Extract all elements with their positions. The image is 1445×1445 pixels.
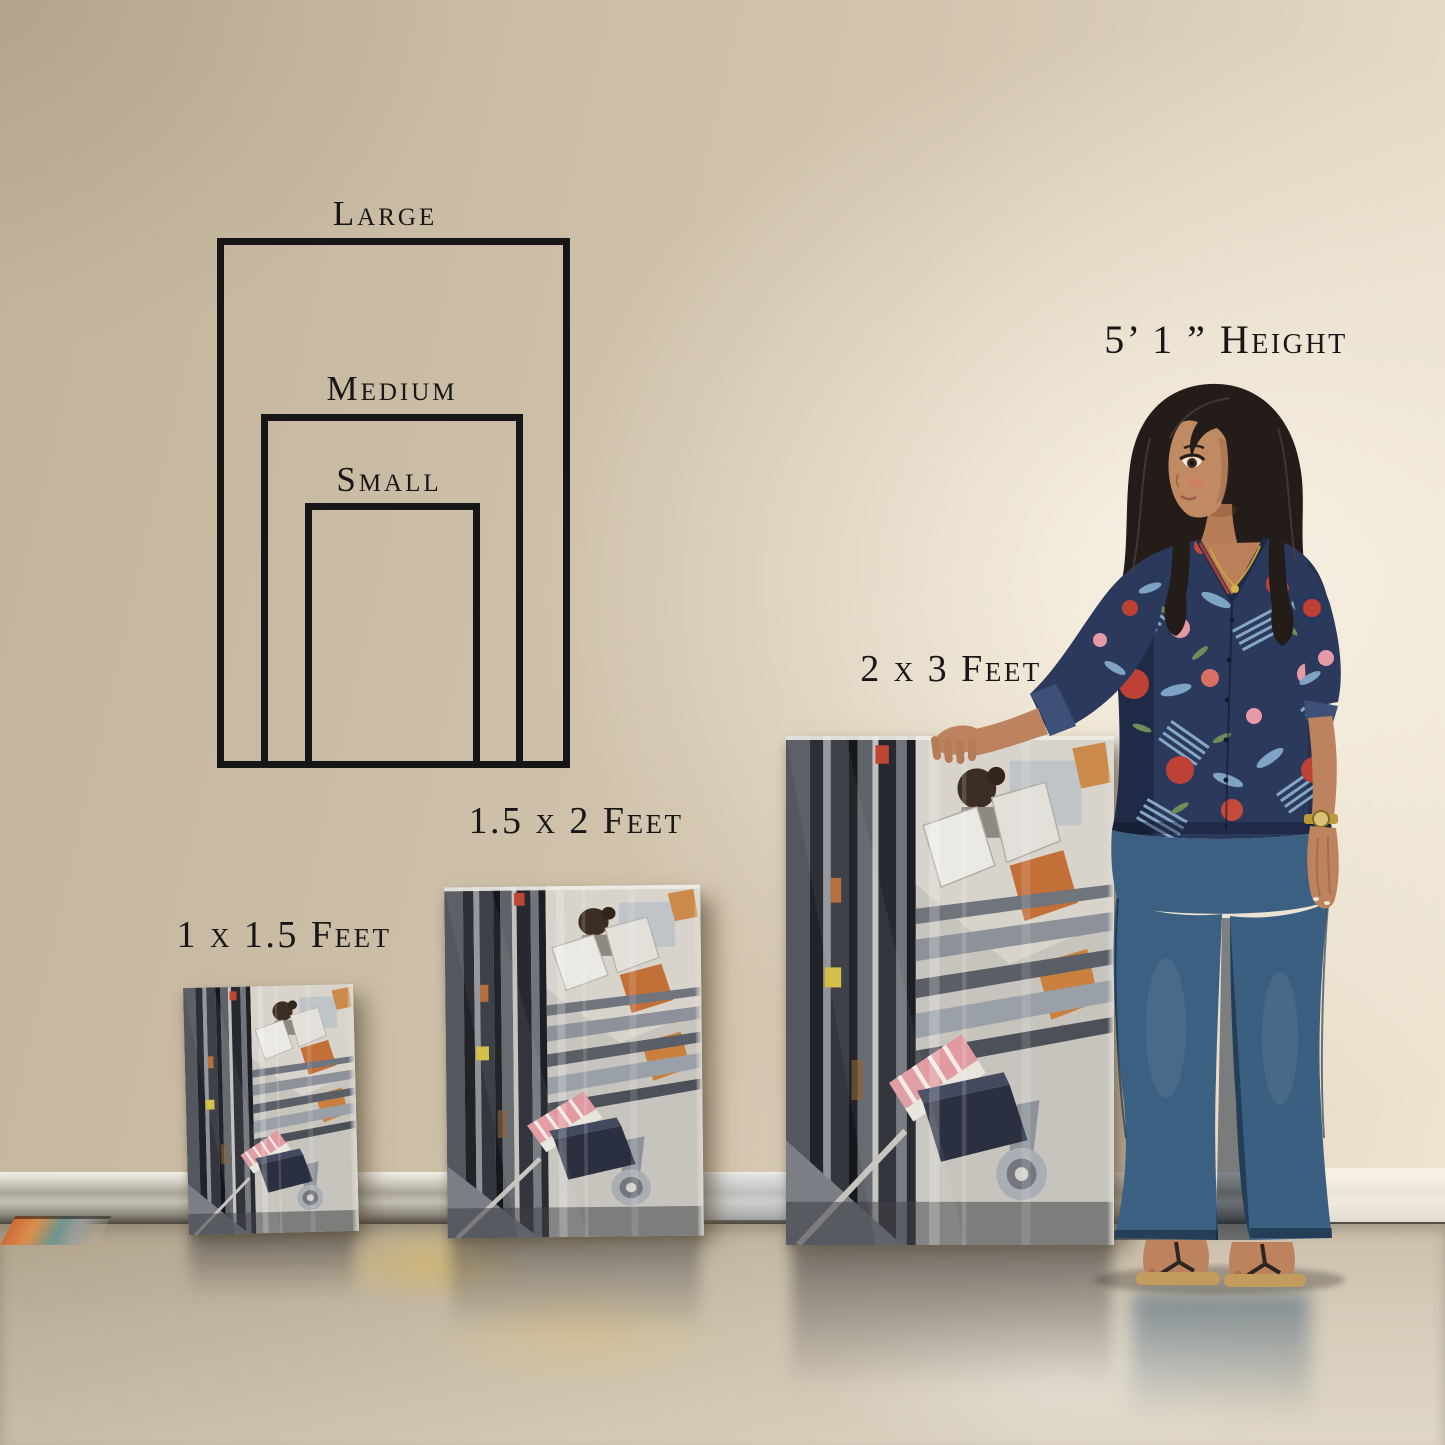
canvas-medium (444, 885, 704, 1239)
jeans (1111, 830, 1332, 1240)
reflection-canvas-small (190, 1232, 354, 1304)
right-forearm (970, 708, 1048, 756)
label-canvas-medium-size: 1.5 x 2 Feet (468, 802, 683, 840)
reflection-woman (1132, 1292, 1310, 1432)
blush (1187, 478, 1205, 487)
floor-artwork-fragment (0, 1216, 111, 1245)
label-medium: Medium (326, 371, 457, 406)
label-person-height: 5’ 1 ” Height (1104, 320, 1347, 360)
left-hand (1307, 826, 1339, 908)
canvas-small (183, 984, 359, 1235)
size-guide-scene: Large Medium Small 5’ 1 ” Height 2 x 3 F… (0, 0, 1445, 1445)
label-small: Small (336, 462, 441, 497)
reflection-canvas-medium (452, 1238, 700, 1342)
watch-face (1313, 811, 1329, 827)
label-canvas-small-size: 1 x 1.5 Feet (176, 916, 391, 954)
size-outline-small (305, 503, 480, 768)
right-sandal-sole (1224, 1274, 1306, 1287)
label-large: Large (333, 196, 437, 231)
floor-shadow-feet (1095, 1266, 1345, 1294)
woman-illustration (880, 378, 1400, 1308)
left-sandal-sole (1136, 1272, 1220, 1285)
